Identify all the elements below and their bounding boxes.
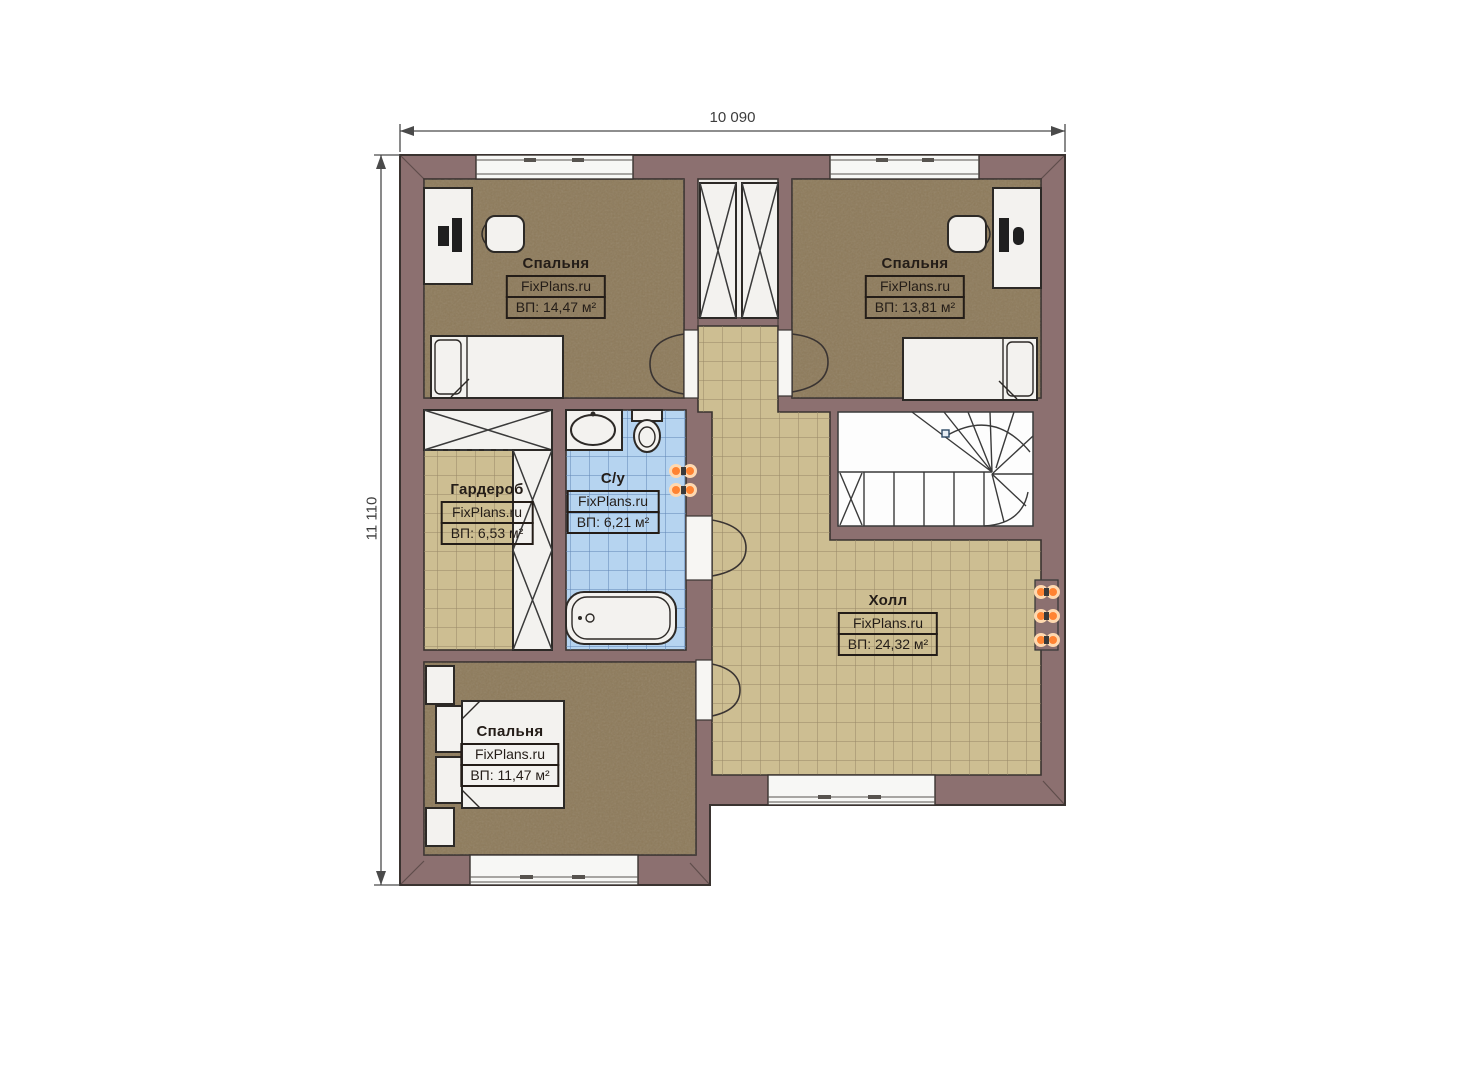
- stair-marker: [942, 430, 949, 437]
- room-area: ВП: 11,47 м²: [460, 764, 559, 787]
- room-name: Спальня: [865, 255, 965, 272]
- dimension-top: [400, 124, 1065, 152]
- room-name: Гардероб: [441, 481, 534, 498]
- room-brand: FixPlans.ru: [567, 490, 660, 513]
- room-label-bedroom-bottom: Спальня FixPlans.ru ВП: 11,47 м²: [460, 723, 559, 787]
- floor-plan-canvas: 10 090 11 110 Спальня FixPlans.ru ВП: 14…: [0, 0, 1473, 1080]
- room-brand: FixPlans.ru: [460, 743, 559, 766]
- desk-chair: [482, 216, 524, 252]
- radiator-hall: [1034, 580, 1060, 650]
- floor-wardrobe-grid: [424, 450, 513, 650]
- room-label-wardrobe: Гардероб FixPlans.ru ВП: 6,53 м²: [441, 481, 534, 545]
- room-brand: FixPlans.ru: [838, 612, 938, 635]
- room-label-hall: Холл FixPlans.ru ВП: 24,32 м²: [838, 592, 938, 656]
- floor-plan-drawing: [0, 0, 1473, 1080]
- dimension-height-label: 11 110: [364, 459, 381, 579]
- keyboard: [438, 226, 449, 246]
- nightstand: [436, 757, 462, 803]
- room-area: ВП: 13,81 м²: [865, 296, 965, 319]
- room-name: С/у: [567, 470, 660, 487]
- window: [476, 155, 633, 179]
- single-bed: [431, 336, 563, 398]
- wardrobe-cabinet: [424, 410, 552, 450]
- room-name: Спальня: [460, 723, 559, 740]
- monitor: [452, 218, 462, 252]
- desk-chair: [948, 216, 990, 252]
- dimension-width-label: 10 090: [400, 109, 1065, 126]
- monitor: [999, 218, 1009, 252]
- room-area: ВП: 6,21 м²: [567, 511, 660, 534]
- room-area: ВП: 14,47 м²: [506, 296, 606, 319]
- room-name: Спальня: [506, 255, 606, 272]
- dresser: [426, 808, 454, 846]
- sink: [566, 410, 622, 450]
- single-bed: [903, 338, 1037, 400]
- room-area: ВП: 24,32 м²: [838, 633, 938, 656]
- room-name: Холл: [838, 592, 938, 609]
- niche-wall: [698, 318, 778, 326]
- toilet: [632, 410, 662, 452]
- stairs: [838, 412, 1033, 526]
- desk: [424, 188, 472, 284]
- wardrobe-cabinet: [742, 183, 778, 318]
- room-area: ВП: 6,53 м²: [441, 522, 534, 545]
- room-brand: FixPlans.ru: [865, 275, 965, 298]
- window: [470, 855, 638, 885]
- wardrobe-cabinet: [700, 183, 736, 318]
- dresser: [426, 666, 454, 704]
- nightstand: [436, 706, 462, 752]
- room-label-bathroom: С/у FixPlans.ru ВП: 6,21 м²: [567, 470, 660, 534]
- wardrobe-cabinet: [513, 450, 552, 650]
- bathtub: [566, 592, 676, 644]
- room-brand: FixPlans.ru: [506, 275, 606, 298]
- keyboard: [1013, 227, 1024, 245]
- room-brand: FixPlans.ru: [441, 501, 534, 524]
- room-label-bedroom-top-left: Спальня FixPlans.ru ВП: 14,47 м²: [506, 255, 606, 319]
- window: [768, 775, 935, 805]
- desk: [993, 188, 1041, 288]
- window: [830, 155, 979, 179]
- room-label-bedroom-top-right: Спальня FixPlans.ru ВП: 13,81 м²: [865, 255, 965, 319]
